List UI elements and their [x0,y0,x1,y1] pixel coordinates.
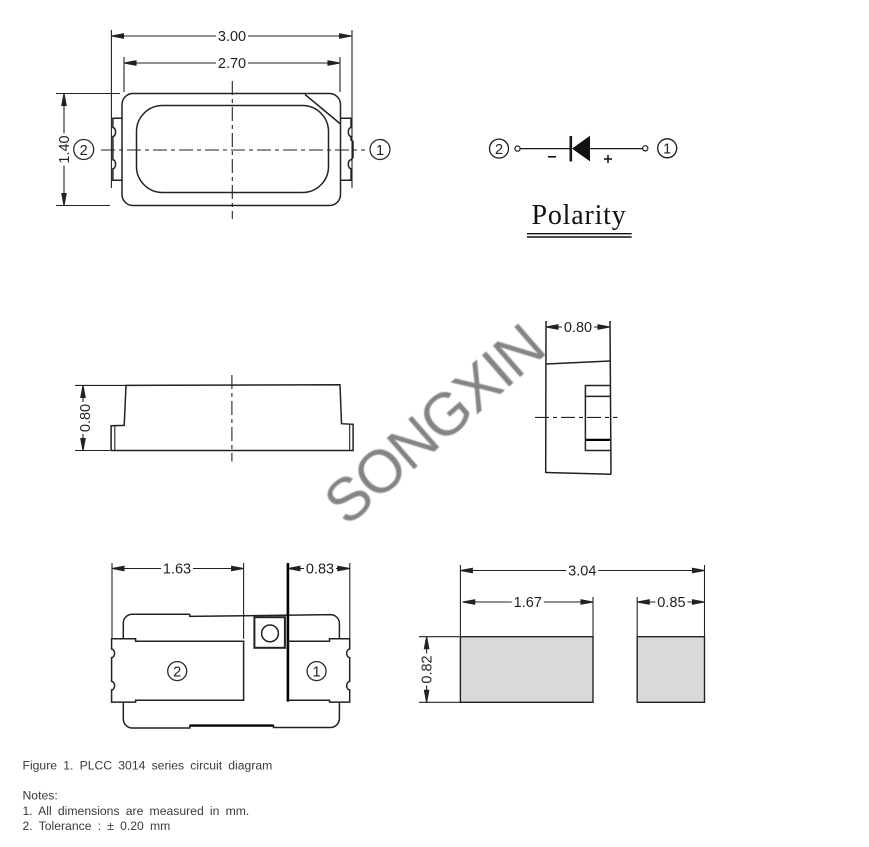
svg-text:2: 2 [80,143,88,159]
svg-text:Figure 1. PLCC 3014 series cir: Figure 1. PLCC 3014 series circuit diagr… [23,759,273,773]
svg-text:3.04: 3.04 [568,564,596,580]
svg-text:0.85: 0.85 [657,595,685,611]
svg-text:0.82: 0.82 [420,655,436,683]
svg-text:3.00: 3.00 [218,29,246,45]
svg-text:2: 2 [173,664,181,680]
svg-text:2: 2 [495,142,503,158]
svg-text:1: 1 [313,664,321,680]
svg-text:0.80: 0.80 [564,320,592,336]
svg-text:1.40: 1.40 [57,135,73,163]
svg-text:1: 1 [663,142,671,158]
svg-text:1. All dimensions are measured: 1. All dimensions are measured in mm. [23,804,250,818]
svg-text:1: 1 [376,143,384,159]
svg-text:0.80: 0.80 [78,404,94,432]
svg-text:2.70: 2.70 [218,56,246,72]
svg-text:0.83: 0.83 [306,562,334,578]
svg-text:Notes:: Notes: [23,789,58,803]
svg-text:1.63: 1.63 [163,562,191,578]
svg-text:1.67: 1.67 [514,595,542,611]
svg-text:2. Tolerance : ± 0.20 mm: 2. Tolerance : ± 0.20 mm [23,819,171,833]
svg-text:Polarity: Polarity [531,200,626,231]
